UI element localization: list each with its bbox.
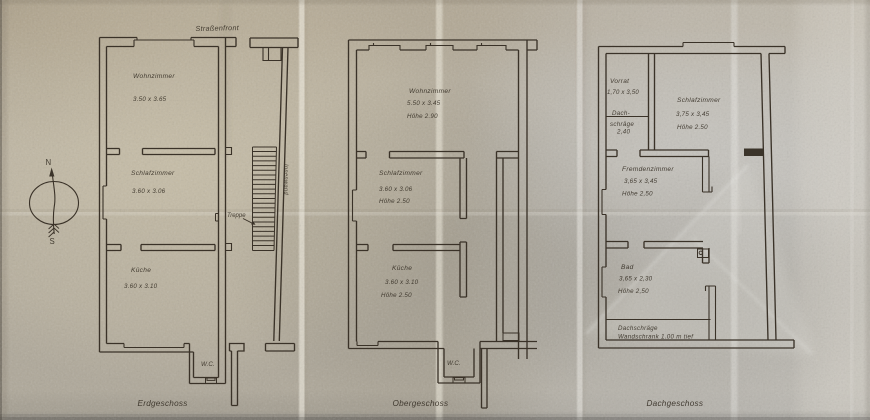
svg-text:3.60 x 3.06: 3.60 x 3.06 <box>379 186 413 193</box>
svg-text:Höhe 2,50: Höhe 2,50 <box>618 288 649 295</box>
svg-text:3,65 x 3,45: 3,65 x 3,45 <box>624 178 658 185</box>
svg-text:Schlafzimmer: Schlafzimmer <box>677 97 721 104</box>
svg-text:5.50 x 3.45: 5.50 x 3.45 <box>407 100 441 107</box>
svg-text:Höhe 2.50: Höhe 2.50 <box>381 292 412 299</box>
svg-text:3.60 x 3.10: 3.60 x 3.10 <box>385 279 419 286</box>
svg-text:2,40: 2,40 <box>616 129 631 136</box>
svg-text:S: S <box>50 237 55 246</box>
svg-text:Obergeschoss: Obergeschoss <box>393 399 449 408</box>
svg-text:Fremdenzimmer: Fremdenzimmer <box>622 166 674 173</box>
svg-text:Höhe 2.50: Höhe 2.50 <box>379 198 410 205</box>
svg-text:W.C.: W.C. <box>201 361 215 368</box>
svg-text:Wohnzimmer: Wohnzimmer <box>133 73 175 80</box>
svg-text:N: N <box>46 158 52 167</box>
svg-text:3.50 x 3.65: 3.50 x 3.65 <box>133 96 167 103</box>
svg-text:Schlafzimmer: Schlafzimmer <box>379 170 423 177</box>
svg-text:Schlafzimmer: Schlafzimmer <box>131 170 175 177</box>
svg-text:Treppe: Treppe <box>227 213 246 219</box>
svg-text:Innenwand: Innenwand <box>283 164 289 195</box>
svg-text:Küche: Küche <box>131 267 151 274</box>
svg-text:Straßenfront: Straßenfront <box>195 23 239 33</box>
svg-text:3.60 x 3.06: 3.60 x 3.06 <box>132 188 166 195</box>
svg-text:Dachgeschoss: Dachgeschoss <box>647 399 704 408</box>
svg-text:3,75 x 3,45: 3,75 x 3,45 <box>676 111 710 118</box>
svg-text:Höhe 2,50: Höhe 2,50 <box>622 191 653 198</box>
svg-text:Höhe 2.90: Höhe 2.90 <box>407 113 438 120</box>
svg-text:Bad: Bad <box>621 264 634 271</box>
svg-text:Dachschräge: Dachschräge <box>618 325 658 332</box>
svg-text:Vorrat: Vorrat <box>610 78 630 85</box>
svg-text:Wandschrank 1.00 m tief: Wandschrank 1.00 m tief <box>618 334 694 341</box>
svg-text:Dach-: Dach- <box>612 110 630 117</box>
svg-text:3,65 x 2,30: 3,65 x 2,30 <box>619 276 653 283</box>
svg-text:3.60 x 3.10: 3.60 x 3.10 <box>124 283 158 290</box>
svg-text:schräge: schräge <box>610 121 634 128</box>
svg-text:Küche: Küche <box>392 265 412 272</box>
svg-text:Wohnzimmer: Wohnzimmer <box>409 88 451 95</box>
svg-text:1,70 x 3,50: 1,70 x 3,50 <box>607 90 639 96</box>
svg-text:Höhe 2.50: Höhe 2.50 <box>677 124 708 131</box>
svg-text:Erdgeschoss: Erdgeschoss <box>138 399 188 408</box>
svg-text:W.C.: W.C. <box>447 360 461 367</box>
